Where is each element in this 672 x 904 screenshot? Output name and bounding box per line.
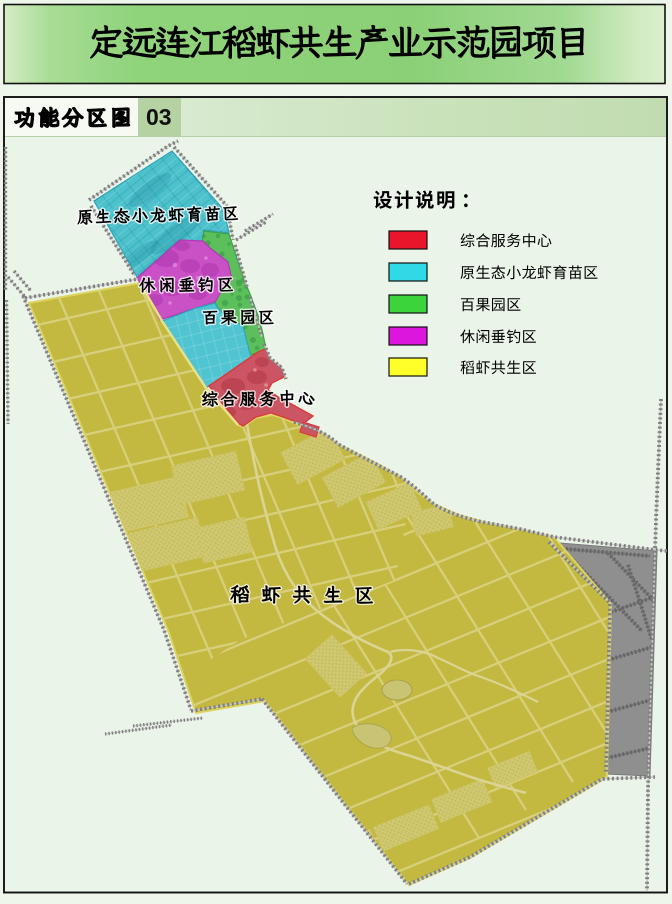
- svg-text:03: 03: [146, 104, 172, 130]
